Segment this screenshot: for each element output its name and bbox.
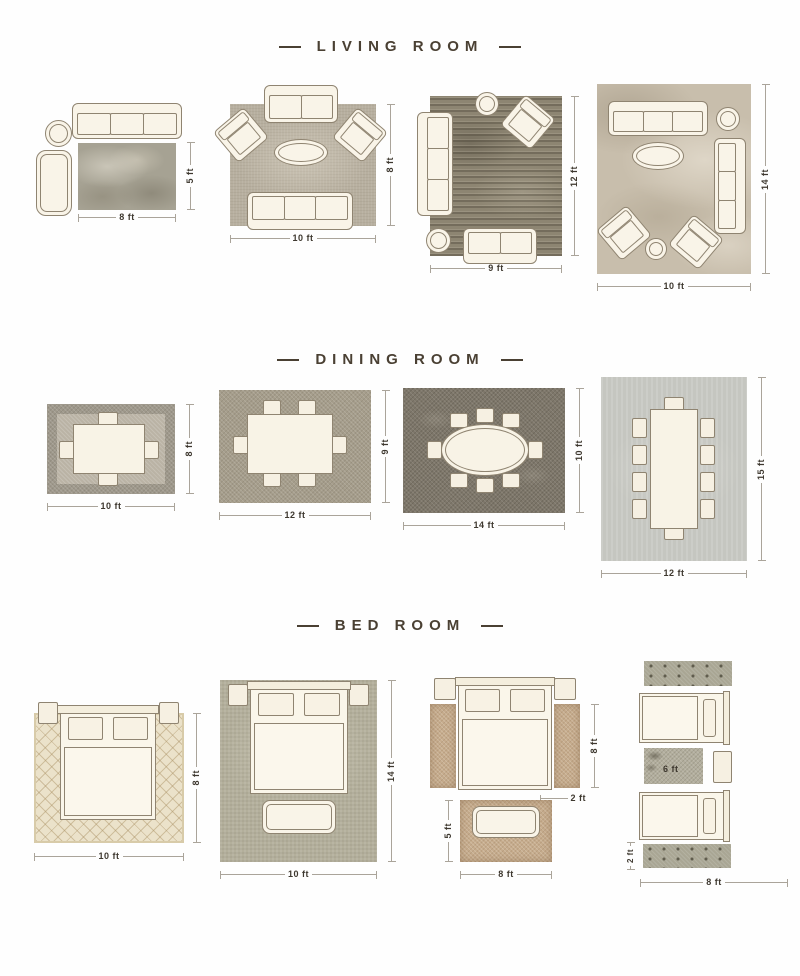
dining-table bbox=[247, 414, 333, 474]
nightstand bbox=[349, 684, 369, 706]
dimension-line bbox=[460, 874, 495, 875]
sofa bbox=[608, 101, 708, 136]
dining-chair bbox=[632, 499, 647, 519]
dimension-line bbox=[47, 506, 98, 507]
width-label: 12 ft bbox=[285, 510, 306, 520]
dining-chair bbox=[632, 445, 647, 465]
sofa bbox=[247, 192, 353, 230]
width-dimension: 10 ft bbox=[34, 850, 184, 862]
width-label: 14 ft bbox=[474, 520, 495, 530]
dining-chair bbox=[632, 472, 647, 492]
dimension-line bbox=[688, 573, 748, 574]
width-label: 10 ft bbox=[288, 869, 309, 879]
nightstand bbox=[554, 678, 576, 700]
runner-height-label: 8 ft bbox=[589, 738, 599, 754]
height-dimension: 8 ft bbox=[384, 104, 396, 226]
dining-chair bbox=[700, 472, 715, 492]
layout-living-14x10: 14 ft 10 ft bbox=[595, 82, 781, 292]
title-dash bbox=[279, 46, 301, 48]
sofa bbox=[72, 103, 182, 139]
runner-rug bbox=[430, 704, 456, 788]
dimension-line bbox=[309, 515, 372, 516]
runner-height-label: 2 ft bbox=[626, 849, 635, 863]
sofa bbox=[714, 138, 746, 234]
headboard bbox=[247, 681, 351, 690]
dimension-line bbox=[34, 856, 96, 857]
width-dimension: 10 ft bbox=[597, 280, 751, 292]
dimension-line bbox=[688, 286, 752, 287]
title-dash bbox=[501, 359, 523, 361]
dining-chair bbox=[427, 441, 442, 459]
runner-width-label: 2 ft bbox=[571, 793, 587, 803]
nightstand bbox=[228, 684, 248, 706]
nightstand bbox=[434, 678, 456, 700]
section-title: DINING ROOM bbox=[315, 351, 484, 368]
height-dimension: 5 ft bbox=[184, 142, 196, 210]
bed bbox=[458, 678, 552, 790]
sofa bbox=[264, 85, 338, 123]
dimension-line bbox=[498, 525, 566, 526]
dimension-line bbox=[448, 800, 449, 820]
dimension-line bbox=[448, 842, 449, 862]
chaise-chair bbox=[36, 150, 72, 216]
height-label: 5 ft bbox=[185, 168, 195, 184]
dining-chair bbox=[476, 478, 494, 493]
height-dimension: 12 ft bbox=[568, 96, 580, 256]
twin-bed bbox=[639, 693, 729, 743]
width-label: 10 ft bbox=[101, 501, 122, 511]
section-title: BED ROOM bbox=[335, 617, 466, 634]
title-dash bbox=[277, 359, 299, 361]
height-dimension: 14 ft bbox=[759, 84, 771, 274]
rug bbox=[78, 143, 176, 210]
dimension-line bbox=[189, 404, 190, 438]
dining-chair bbox=[700, 445, 715, 465]
dimension-line bbox=[540, 798, 568, 799]
dimension-line bbox=[220, 874, 285, 875]
dimension-line bbox=[385, 457, 386, 503]
pillow bbox=[258, 693, 294, 716]
dining-chair bbox=[700, 499, 715, 519]
dining-chair bbox=[528, 441, 543, 459]
dining-chair bbox=[632, 418, 647, 438]
height-label: 14 ft bbox=[760, 169, 770, 190]
nightstand bbox=[159, 702, 179, 724]
dimension-line bbox=[574, 96, 575, 163]
height-label: 10 ft bbox=[574, 440, 584, 461]
foot-rug-width-dimension: 8 ft bbox=[460, 868, 552, 880]
dimension-line bbox=[579, 464, 580, 513]
layout-dining-9x12: 9 ft 12 ft bbox=[217, 386, 395, 521]
dimension-line bbox=[219, 515, 282, 516]
bench bbox=[472, 806, 540, 838]
layout-living-5x8: 5 ft 8 ft bbox=[36, 85, 200, 227]
dimension-line bbox=[391, 680, 392, 758]
dining-chair bbox=[700, 418, 715, 438]
layout-living-12x9: 12 ft 9 ft bbox=[414, 88, 584, 274]
height-dimension: 15 ft bbox=[755, 377, 767, 561]
width-dimension: 10 ft bbox=[220, 868, 377, 880]
dimension-line bbox=[78, 217, 116, 218]
dining-chair bbox=[143, 441, 159, 459]
width-label: 8 ft bbox=[119, 212, 135, 222]
dimension-line bbox=[630, 842, 631, 846]
width-label: 10 ft bbox=[293, 233, 314, 243]
dimension-line bbox=[391, 785, 392, 863]
pillow bbox=[510, 689, 545, 712]
runner-height-dimension: 8 ft bbox=[588, 704, 600, 788]
height-label: 8 ft bbox=[184, 441, 194, 457]
duvet bbox=[254, 723, 344, 790]
pillow bbox=[113, 717, 149, 740]
height-dimension: 8 ft bbox=[183, 404, 195, 494]
pillow bbox=[68, 717, 104, 740]
width-dimension: 8 ft bbox=[640, 876, 788, 888]
dimension-line bbox=[640, 882, 703, 883]
layout-dining-8x10: 8 ft 10 ft bbox=[45, 400, 201, 512]
height-label: 14 ft bbox=[386, 761, 396, 782]
dimension-line bbox=[123, 856, 185, 857]
dimension-line bbox=[196, 789, 197, 843]
nightstand bbox=[713, 751, 732, 783]
between-rug-width-label: 6 ft bbox=[663, 764, 679, 774]
dimension-line bbox=[579, 388, 580, 437]
dimension-line bbox=[312, 874, 377, 875]
coffee-table bbox=[274, 139, 328, 166]
nightstand bbox=[38, 702, 58, 724]
side-table bbox=[645, 238, 667, 260]
width-dimension: 8 ft bbox=[78, 211, 176, 223]
runner-rug bbox=[643, 844, 731, 868]
width-label: 10 ft bbox=[664, 281, 685, 291]
dimension-line bbox=[125, 506, 176, 507]
width-dimension: 12 ft bbox=[601, 567, 747, 579]
height-label: 9 ft bbox=[380, 439, 390, 455]
height-dimension: 14 ft bbox=[385, 680, 397, 862]
title-dash bbox=[481, 625, 503, 627]
dimension-line bbox=[190, 142, 191, 165]
runner-rug bbox=[554, 704, 580, 788]
height-label: 8 ft bbox=[385, 157, 395, 173]
loveseat bbox=[463, 228, 537, 264]
dimension-line bbox=[765, 193, 766, 275]
layout-bed-runners: 8 ft 2 ft 5 ft 8 ft bbox=[428, 674, 612, 882]
dimension-line bbox=[189, 460, 190, 494]
headboard bbox=[455, 677, 555, 686]
pillow bbox=[304, 693, 340, 716]
dining-table-oval bbox=[441, 424, 529, 476]
foot-rug-height-label: 5 ft bbox=[443, 823, 453, 839]
title-dash bbox=[499, 46, 521, 48]
dimension-line bbox=[507, 268, 562, 269]
pillow bbox=[703, 798, 716, 834]
dimension-line bbox=[597, 286, 661, 287]
dimension-line bbox=[196, 713, 197, 767]
height-dimension: 10 ft bbox=[573, 388, 585, 513]
dimension-line bbox=[190, 187, 191, 210]
width-label: 12 ft bbox=[664, 568, 685, 578]
layout-bed-twin: 6 ft 2 ft 8 ft bbox=[623, 658, 795, 888]
duvet bbox=[642, 696, 698, 740]
height-label: 8 ft bbox=[191, 770, 201, 786]
layout-living-8x10: 8 ft 10 ft bbox=[219, 80, 399, 242]
dimension-line bbox=[574, 190, 575, 257]
headboard bbox=[57, 705, 159, 714]
coffee-table bbox=[632, 142, 684, 170]
dining-chair bbox=[502, 473, 520, 488]
dimension-line bbox=[390, 176, 391, 226]
dimension-line bbox=[725, 882, 788, 883]
runner-height-dimension: 2 ft bbox=[624, 842, 636, 870]
dimension-line bbox=[403, 525, 471, 526]
height-dimension: 9 ft bbox=[379, 390, 391, 503]
dining-chair bbox=[331, 436, 347, 454]
twin-bed bbox=[639, 792, 729, 840]
duvet bbox=[642, 795, 698, 837]
side-table bbox=[716, 107, 740, 131]
pillow bbox=[703, 699, 716, 737]
side-table bbox=[426, 228, 451, 253]
foot-rug-height-dimension: 5 ft bbox=[442, 800, 454, 862]
rug-size-guide: LIVING ROOM 5 ft 8 ft 8 ft bbox=[0, 0, 800, 976]
layout-dining-10x14: 10 ft 14 ft bbox=[401, 384, 587, 531]
dimension-line bbox=[630, 866, 631, 870]
width-dimension: 10 ft bbox=[230, 232, 376, 244]
dimension-line bbox=[594, 757, 595, 788]
dimension-line bbox=[317, 238, 377, 239]
side-table bbox=[475, 92, 499, 116]
height-dimension: 8 ft bbox=[190, 713, 202, 843]
dimension-line bbox=[390, 104, 391, 154]
dimension-line bbox=[594, 704, 595, 735]
height-label: 15 ft bbox=[756, 459, 766, 480]
layout-dining-15x12: 15 ft 12 ft bbox=[599, 373, 771, 579]
bed bbox=[60, 706, 156, 820]
foot-rug-width-label: 8 ft bbox=[498, 869, 514, 879]
dimension-line bbox=[765, 84, 766, 166]
bench bbox=[262, 800, 336, 834]
width-dimension: 12 ft bbox=[219, 509, 371, 521]
height-label: 12 ft bbox=[569, 166, 579, 187]
width-dimension: 9 ft bbox=[430, 262, 562, 274]
dining-table bbox=[650, 409, 698, 529]
width-label: 9 ft bbox=[488, 263, 504, 273]
dining-table bbox=[73, 424, 145, 474]
dimension-line bbox=[517, 874, 552, 875]
section-header-dining-room: DINING ROOM bbox=[0, 351, 800, 368]
duvet bbox=[462, 719, 548, 786]
dimension-line bbox=[761, 377, 762, 456]
layout-bed-14x10: 14 ft 10 ft bbox=[218, 676, 398, 880]
headboard bbox=[723, 790, 730, 842]
layout-bed-8x10: 8 ft 10 ft bbox=[32, 698, 204, 864]
dimension-line bbox=[601, 573, 661, 574]
sofa bbox=[417, 112, 453, 216]
width-label: 8 ft bbox=[706, 877, 722, 887]
bed bbox=[250, 682, 348, 794]
dimension-line bbox=[230, 238, 290, 239]
dimension-line bbox=[385, 390, 386, 436]
side-table bbox=[45, 120, 72, 147]
pillow bbox=[465, 689, 500, 712]
section-header-living-room: LIVING ROOM bbox=[0, 38, 800, 55]
width-dimension: 10 ft bbox=[47, 500, 175, 512]
dining-chair bbox=[450, 473, 468, 488]
width-label: 10 ft bbox=[99, 851, 120, 861]
section-header-bed-room: BED ROOM bbox=[0, 617, 800, 634]
dimension-line bbox=[430, 268, 485, 269]
dining-chair bbox=[476, 408, 494, 423]
width-dimension: 14 ft bbox=[403, 519, 565, 531]
dimension-line bbox=[761, 483, 762, 562]
runner-rug bbox=[644, 661, 732, 686]
title-dash bbox=[297, 625, 319, 627]
section-title: LIVING ROOM bbox=[317, 38, 484, 55]
headboard bbox=[723, 691, 730, 745]
duvet bbox=[64, 747, 152, 816]
dimension-line bbox=[138, 217, 176, 218]
